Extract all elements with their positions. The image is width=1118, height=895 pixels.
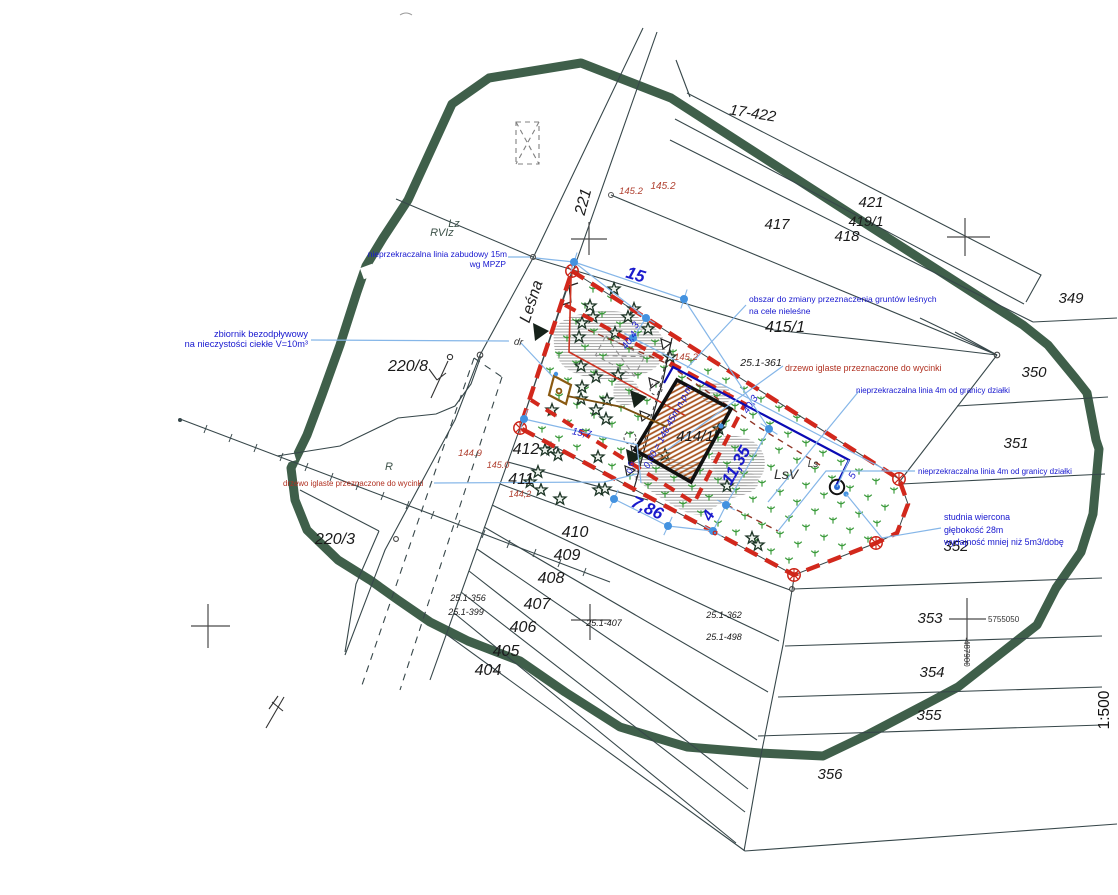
svg-text:nieprzekraczalna linia 4m od g: nieprzekraczalna linia 4m od granicy dzi… — [918, 467, 1072, 476]
svg-text:na nieczystości ciekłe V=10m³: na nieczystości ciekłe V=10m³ — [185, 339, 308, 349]
svg-text:głębokość 28m: głębokość 28m — [944, 525, 1003, 535]
svg-text:355: 355 — [916, 707, 942, 724]
svg-text:wg MPZP: wg MPZP — [469, 259, 507, 269]
svg-text:412: 412 — [513, 441, 540, 458]
svg-text:418: 418 — [834, 228, 860, 245]
svg-text:25.1-399: 25.1-399 — [447, 607, 484, 617]
svg-text:nieprzekraczalna linia 4m od g: nieprzekraczalna linia 4m od granicy dzi… — [856, 386, 1010, 395]
svg-text:drzewo iglaste przeznaczone do: drzewo iglaste przeznaczone do wycinki — [785, 363, 942, 373]
svg-text:351: 351 — [1003, 435, 1028, 452]
svg-text:wydajność mniej niż 5m3/dobę: wydajność mniej niż 5m3/dobę — [943, 537, 1064, 547]
svg-text:354: 354 — [919, 664, 944, 681]
svg-text:356: 356 — [817, 766, 843, 783]
svg-text:5755050: 5755050 — [988, 615, 1020, 624]
svg-text:405: 405 — [493, 643, 520, 660]
svg-text:-487900: -487900 — [962, 637, 971, 667]
svg-text:25.1-407: 25.1-407 — [585, 618, 623, 628]
svg-text:LsV: LsV — [774, 466, 800, 482]
svg-text:406: 406 — [510, 619, 537, 636]
svg-text:145.2: 145.2 — [650, 181, 675, 192]
svg-text:417: 417 — [764, 216, 790, 233]
svg-text:145,2: 145,2 — [674, 352, 698, 363]
svg-text:25.1-498: 25.1-498 — [705, 632, 742, 642]
svg-text:drzewo iglaste przeznaczone do: drzewo iglaste przeznaczone do wycinki — [283, 479, 424, 488]
svg-text:407: 407 — [524, 596, 552, 613]
svg-text:nieprzekraczalna linia zabudow: nieprzekraczalna linia zabudowy 15m — [368, 249, 507, 259]
svg-text:404: 404 — [475, 662, 502, 679]
svg-text:na cele nieleśne: na cele nieleśne — [749, 306, 811, 316]
svg-text:Ls: Ls — [808, 459, 819, 470]
svg-text:25.1-361: 25.1-361 — [739, 357, 781, 369]
svg-text:144.9: 144.9 — [458, 448, 482, 459]
svg-text:419/1: 419/1 — [848, 213, 883, 229]
svg-text:421: 421 — [858, 194, 883, 211]
svg-text:obszar do zmiany przeznaczenia: obszar do zmiany przeznaczenia gruntów l… — [749, 294, 937, 304]
svg-text:studnia wiercona: studnia wiercona — [944, 512, 1010, 522]
svg-text:349: 349 — [1058, 290, 1084, 307]
svg-text:411: 411 — [508, 471, 534, 488]
svg-text:350: 350 — [1021, 364, 1047, 381]
svg-text:353: 353 — [917, 610, 943, 627]
svg-text:25.1-356: 25.1-356 — [449, 593, 486, 603]
svg-text:144,2: 144,2 — [509, 489, 532, 499]
svg-text:zbiornik bezodpływowy: zbiornik bezodpływowy — [214, 329, 308, 339]
svg-text:220/8: 220/8 — [387, 358, 428, 375]
svg-text:145.0: 145.0 — [487, 460, 510, 470]
svg-text:415/1: 415/1 — [765, 319, 805, 336]
svg-text:409: 409 — [554, 547, 581, 564]
svg-text:25.1-362: 25.1-362 — [705, 610, 742, 620]
svg-text:RVIz: RVIz — [430, 227, 454, 239]
svg-text:R: R — [385, 461, 393, 473]
svg-text:0,6: 0,6 — [624, 461, 636, 475]
svg-text:145.2: 145.2 — [619, 186, 643, 197]
svg-text:408: 408 — [538, 570, 565, 587]
svg-text:410: 410 — [562, 524, 589, 541]
svg-text:414/1: 414/1 — [676, 428, 714, 445]
svg-text:220/3: 220/3 — [314, 531, 355, 548]
svg-text:1:500: 1:500 — [1096, 690, 1113, 729]
